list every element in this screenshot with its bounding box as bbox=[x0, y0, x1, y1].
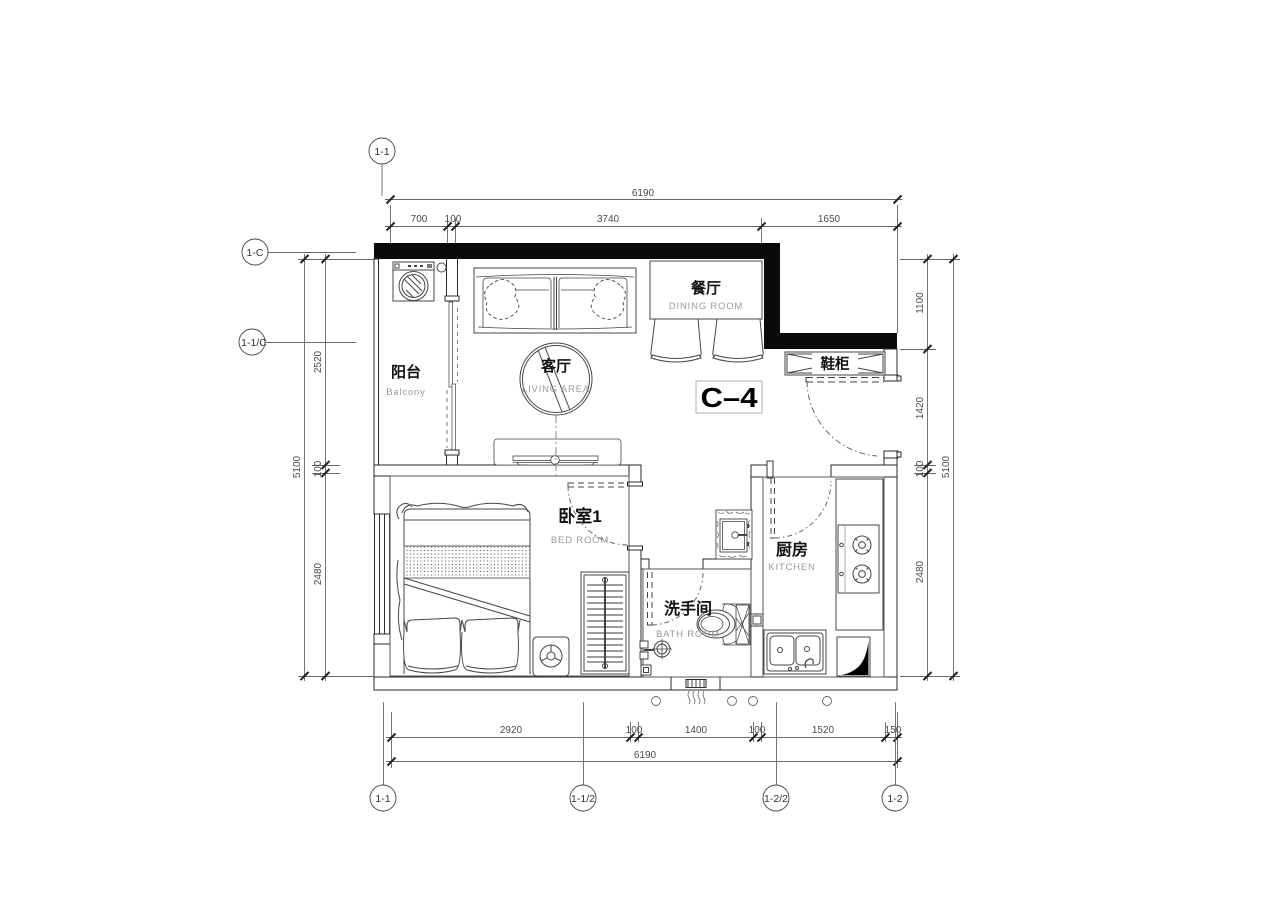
svg-text:洗手间: 洗手间 bbox=[664, 599, 712, 618]
svg-text:1100: 1100 bbox=[915, 292, 926, 314]
svg-text:1650: 1650 bbox=[818, 214, 841, 225]
svg-text:DINING ROOM: DINING ROOM bbox=[669, 301, 743, 312]
svg-text:客厅: 客厅 bbox=[540, 357, 571, 375]
svg-text:100: 100 bbox=[749, 725, 766, 736]
svg-text:2480: 2480 bbox=[915, 560, 926, 583]
svg-text:100: 100 bbox=[445, 214, 462, 225]
svg-text:150: 150 bbox=[885, 725, 902, 736]
svg-text:100: 100 bbox=[313, 460, 324, 477]
svg-text:6190: 6190 bbox=[632, 188, 655, 199]
svg-text:3740: 3740 bbox=[597, 214, 620, 225]
svg-text:阳台: 阳台 bbox=[391, 363, 421, 381]
svg-text:BATH ROOM: BATH ROOM bbox=[656, 629, 720, 640]
svg-text:1-C: 1-C bbox=[247, 247, 264, 259]
svg-text:1-1: 1-1 bbox=[375, 793, 390, 805]
svg-text:1-2: 1-2 bbox=[887, 793, 902, 805]
svg-text:2520: 2520 bbox=[313, 350, 324, 373]
svg-text:厨房: 厨房 bbox=[776, 540, 808, 559]
svg-text:100: 100 bbox=[915, 460, 926, 477]
svg-text:鞋柜: 鞋柜 bbox=[821, 355, 850, 373]
svg-text:BED ROOM: BED ROOM bbox=[551, 535, 609, 546]
svg-text:餐厅: 餐厅 bbox=[691, 279, 721, 297]
svg-text:100: 100 bbox=[626, 725, 643, 736]
svg-text:2920: 2920 bbox=[500, 725, 523, 736]
svg-text:1-1/2: 1-1/2 bbox=[571, 793, 595, 805]
svg-text:C–4: C–4 bbox=[701, 382, 758, 413]
svg-text:卧室1: 卧室1 bbox=[558, 506, 601, 526]
svg-text:6190: 6190 bbox=[634, 750, 657, 761]
svg-text:KITCHEN: KITCHEN bbox=[768, 562, 815, 573]
svg-text:1420: 1420 bbox=[915, 396, 926, 419]
svg-text:1-2/2: 1-2/2 bbox=[764, 793, 788, 805]
svg-text:1520: 1520 bbox=[812, 725, 835, 736]
svg-text:2480: 2480 bbox=[313, 562, 324, 585]
svg-text:700: 700 bbox=[411, 214, 428, 225]
svg-text:Balcony: Balcony bbox=[386, 387, 425, 398]
svg-text:LIVING AREA: LIVING AREA bbox=[522, 384, 590, 395]
svg-text:1400: 1400 bbox=[685, 725, 708, 736]
svg-text:5100: 5100 bbox=[941, 455, 952, 478]
svg-text:1-1/C: 1-1/C bbox=[241, 337, 267, 349]
svg-text:5100: 5100 bbox=[292, 455, 303, 478]
svg-text:1-1: 1-1 bbox=[374, 146, 389, 158]
